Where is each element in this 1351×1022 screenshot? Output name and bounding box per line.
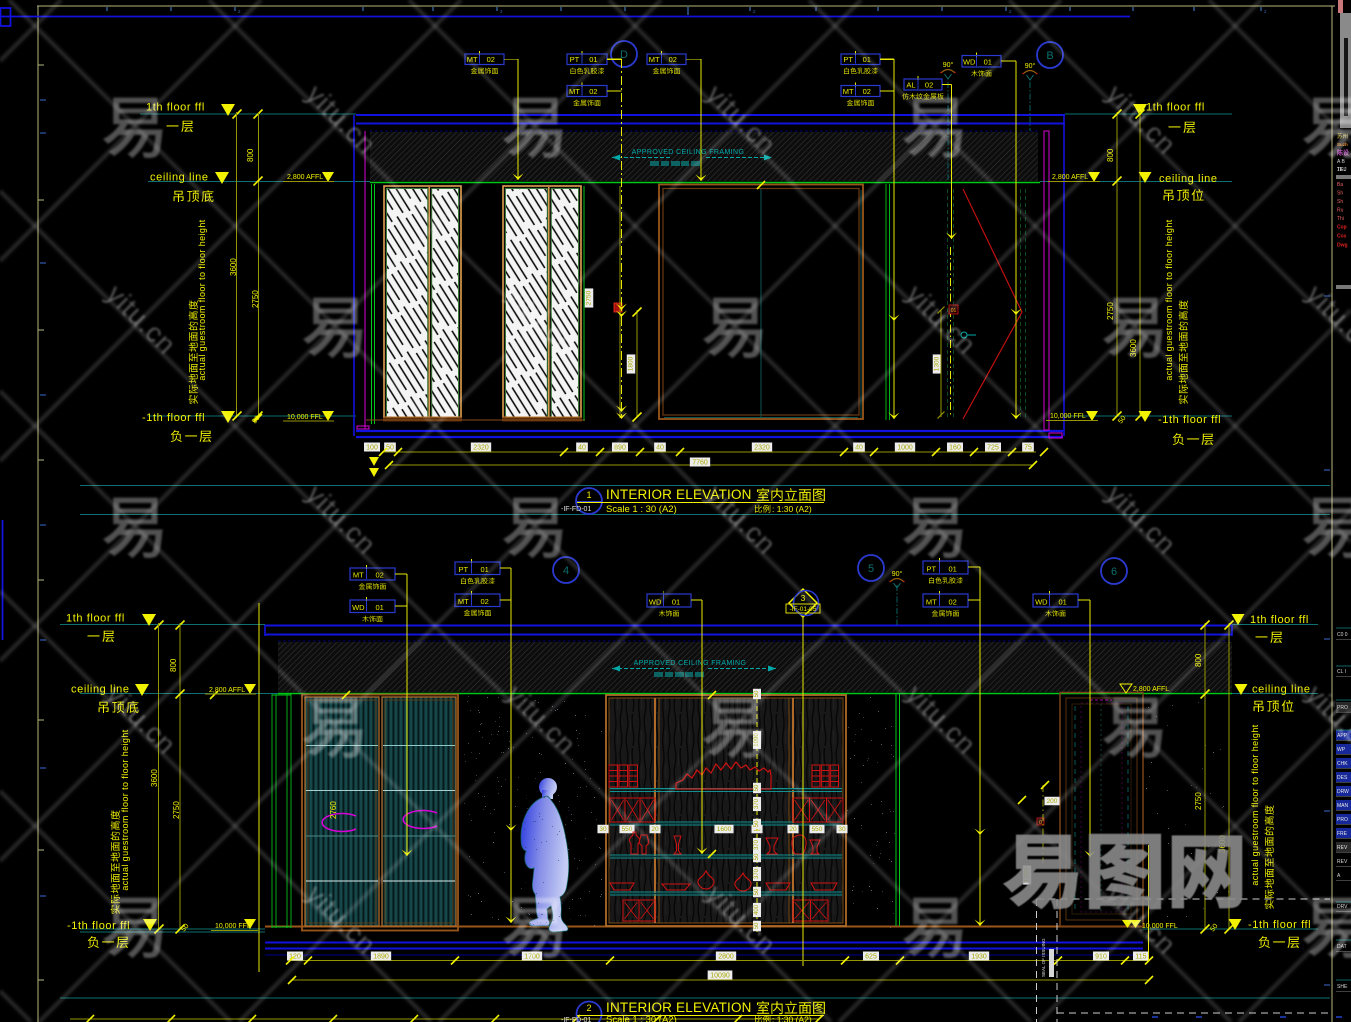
svg-text:WP: WP [1337,747,1346,753]
svg-text:Cos: Cos [1337,234,1347,240]
svg-text:APPROVED CEILING FRAMING: APPROVED CEILING FRAMING [634,660,747,667]
svg-text:01: 01 [376,603,384,612]
svg-text:370: 370 [754,839,760,850]
svg-text:2,800 AFFL: 2,800 AFFL [209,687,245,694]
svg-text:1000: 1000 [897,444,913,451]
svg-text:A B: A B [1337,159,1345,165]
svg-text:02: 02 [925,81,933,90]
svg-text:C0 0: C0 0 [1337,632,1348,638]
svg-text:02: 02 [949,598,957,607]
svg-text:75: 75 [1024,444,1032,451]
svg-text:AL: AL [906,81,915,90]
svg-text:Cop: Cop [1337,225,1347,231]
svg-text:FRE: FRE [1337,831,1348,837]
svg-text:Ru: Ru [1337,208,1344,214]
svg-text:115: 115 [1135,953,1146,960]
svg-text:Thi: Thi [1337,216,1344,222]
svg-text:1: 1 [586,490,591,500]
svg-text:625: 625 [865,953,877,960]
svg-text:370: 370 [754,798,760,809]
svg-text:SEAL OF ISSUING: SEAL OF ISSUING [1041,938,1046,977]
svg-text:50: 50 [386,444,394,451]
svg-text:800: 800 [169,658,178,672]
svg-text:PT: PT [927,565,937,574]
svg-text:6: 6 [1111,566,1117,578]
svg-text:Sh: Sh [1337,199,1343,205]
svg-text:3600: 3600 [229,258,238,276]
svg-text:PT: PT [843,55,853,64]
svg-text:2: 2 [586,1003,591,1013]
svg-text:4: 4 [563,565,569,577]
svg-text:02: 02 [487,55,495,64]
svg-text:800: 800 [246,148,255,162]
svg-text:: 1:30 (A2): : 1:30 (A2) [772,504,812,514]
svg-text:SHE: SHE [1337,984,1348,990]
svg-text:1930: 1930 [971,953,987,960]
svg-text:PT: PT [459,565,469,574]
svg-text:WD: WD [352,603,365,612]
svg-text:MT: MT [649,55,660,64]
svg-text:APPROVED CEILING FRAMING: APPROVED CEILING FRAMING [632,149,745,156]
svg-text:02: 02 [863,87,871,96]
svg-text:2750: 2750 [586,290,593,305]
svg-text:2320: 2320 [754,444,770,451]
svg-text:: 1:30 (A2): : 1:30 (A2) [772,1015,812,1022]
svg-text:20: 20 [651,826,659,833]
svg-text:2750: 2750 [172,801,181,819]
svg-text:50: 50 [754,888,760,895]
svg-text:10090: 10090 [710,972,730,979]
svg-text:B: B [1046,50,1053,62]
svg-text:02: 02 [589,87,597,96]
svg-text:50: 50 [754,820,760,827]
svg-text:1300: 1300 [934,356,941,371]
svg-text:2750: 2750 [251,290,260,308]
svg-text:50: 50 [754,853,760,860]
svg-text:1th floor ffl: 1th floor ffl [1250,614,1309,626]
svg-text:-1th floor ffl: -1th floor ffl [1248,919,1311,931]
svg-text:WD: WD [963,58,976,67]
svg-text:550: 550 [812,826,823,833]
svg-text:INTERIOR ELEVATION: INTERIOR ELEVATION [606,1000,752,1015]
svg-text:50: 50 [754,690,760,697]
svg-text:2760: 2760 [329,801,338,819]
svg-text:-1th floor ffl: -1th floor ffl [142,412,205,424]
svg-text:2,800 AFFL: 2,800 AFFL [287,174,323,181]
svg-text:90°: 90° [1025,62,1036,70]
svg-text:30: 30 [599,826,607,833]
svg-text:-IF-FD-01: -IF-FD-01 [561,1017,591,1022]
svg-text:100: 100 [366,444,378,451]
svg-text:-1th floor ffl: -1th floor ffl [1158,414,1221,426]
svg-text:01: 01 [984,58,992,67]
svg-text:01: 01 [672,598,680,607]
svg-text:actual guestroom floor to floo: actual guestroom floor to floor height [120,729,130,890]
svg-text:1th floor ffl: 1th floor ffl [66,613,125,625]
svg-text:3600: 3600 [150,769,159,787]
svg-text:Ba: Ba [1337,182,1343,188]
svg-text:REV: REV [1337,845,1348,851]
svg-text:Scale 1 : 30 (A2): Scale 1 : 30 (A2) [606,504,677,515]
svg-text:MT: MT [353,571,364,580]
svg-text:1800: 1800 [628,356,635,371]
svg-text:1600: 1600 [717,826,732,833]
svg-text:DES: DES [1337,775,1348,781]
svg-text:40: 40 [578,444,586,451]
svg-text:CHK: CHK [1337,761,1348,767]
svg-text:PRO: PRO [1337,817,1348,823]
svg-text:PT: PT [570,55,580,64]
svg-text:20: 20 [789,826,797,833]
svg-text:7760: 7760 [692,459,708,466]
svg-text:10,000 FFL: 10,000 FFL [1050,413,1086,420]
svg-text:90°: 90° [892,570,903,578]
svg-text:2320: 2320 [473,444,489,451]
svg-text:01: 01 [949,565,957,574]
svg-text:MT: MT [926,598,937,607]
svg-text:WD: WD [1035,598,1048,607]
svg-text:Dwg: Dwg [1337,243,1348,249]
svg-text:1890: 1890 [373,953,389,960]
svg-text:90°: 90° [943,61,954,69]
svg-text:TEL: TEL [1337,167,1346,173]
svg-text:160: 160 [949,444,961,451]
svg-text:50: 50 [754,784,760,791]
svg-text:5: 5 [868,563,874,575]
svg-text:DRW: DRW [1337,789,1349,795]
svg-text:-IF-FD-01: -IF-FD-01 [561,506,591,513]
svg-text:2,800 AFFL: 2,800 AFFL [1133,686,1169,693]
svg-text:Sh: Sh [1337,191,1343,197]
svg-text:-IF-01-05: -IF-01-05 [790,606,817,613]
svg-text:CL I: CL I [1337,669,1346,675]
svg-text:2800: 2800 [718,953,734,960]
svg-text:10,000 FFL: 10,000 FFL [215,923,251,930]
svg-text:725: 725 [987,444,999,451]
svg-text:370: 370 [754,868,760,879]
svg-text:actual guestroom floor to floo: actual guestroom floor to floor height [197,219,207,380]
svg-text:02: 02 [481,597,489,606]
svg-text:ceiling line: ceiling line [150,172,209,184]
svg-text:10,000 FFL: 10,000 FFL [287,414,323,421]
svg-text:MAN: MAN [1337,803,1349,809]
svg-text:REV: REV [1337,859,1348,865]
svg-text:MT: MT [843,87,854,96]
